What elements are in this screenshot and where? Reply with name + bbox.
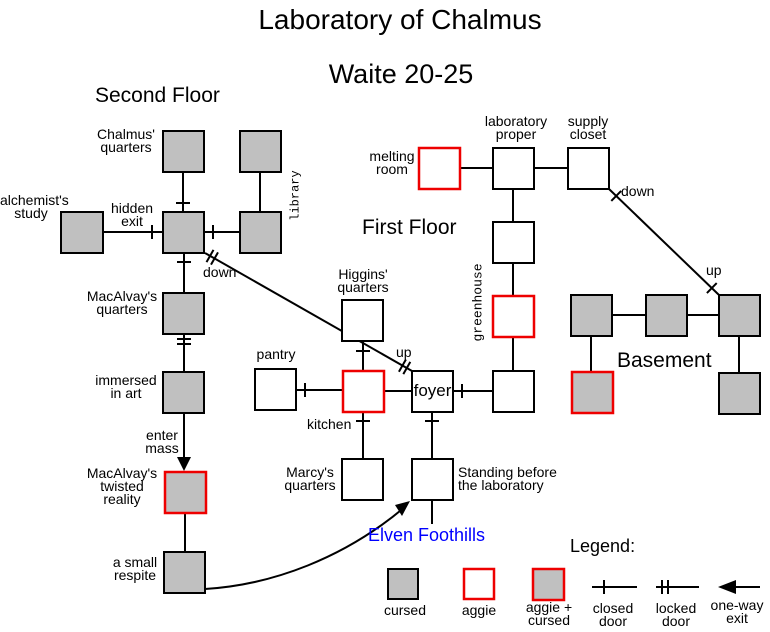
edge-label-up-to-first: up xyxy=(706,264,722,277)
room-second-floor-hall xyxy=(163,212,204,253)
legend-locked-door-glyph xyxy=(656,580,699,594)
edge-stairs-supply-basement xyxy=(609,189,719,295)
room-basement-2 xyxy=(646,295,687,336)
room-label-standing-before-laboratory: Standing before the laboratory xyxy=(458,466,557,492)
room-basement-3 xyxy=(719,295,760,336)
room-label-supply-closet: supply closet xyxy=(538,115,638,141)
room-library-north xyxy=(240,131,281,172)
room-label-foyer: foyer xyxy=(412,382,453,399)
room-label-higgins-quarters: Higgins' quarters xyxy=(313,268,413,294)
edge-label-down-to-first: down xyxy=(203,266,236,279)
room-supply-closet xyxy=(568,148,609,189)
legend-heading: Legend: xyxy=(570,537,635,555)
edge-label-down-to-basement: down xyxy=(621,185,654,198)
edge-oneway-respite-standing xyxy=(205,506,406,589)
region-label-elven-foothills: Elven Foothills xyxy=(368,526,485,544)
room-standing-before-laboratory xyxy=(412,459,453,500)
room-label-marcys-quarters: Marcy's quarters xyxy=(260,466,360,492)
room-label-macalvays-quarters: MacAlvay's quarters xyxy=(72,290,172,316)
room-label-greenhouse: greenhouse xyxy=(472,258,485,348)
room-label-macalvays-twisted-reality: MacAlvay's twisted reality xyxy=(72,467,172,506)
edge-label-hidden-exit: hidden exit xyxy=(103,202,161,228)
room-label-library: library xyxy=(290,166,303,226)
room-pantry xyxy=(255,369,296,410)
legend-glyphs xyxy=(388,569,760,600)
edge-label-up-to-second: up xyxy=(396,346,412,359)
legend-cursed-box xyxy=(388,569,418,599)
room-label-immersed-in-art: immersed in art xyxy=(76,374,176,400)
room-label-kitchen: kitchen xyxy=(307,418,351,431)
legend-aggie-cursed-box xyxy=(533,569,564,600)
room-label-pantry: pantry xyxy=(251,348,301,361)
room-laboratory-proper xyxy=(493,148,534,189)
room-label-a-small-respite: a small respite xyxy=(85,556,185,582)
room-label-alchemists-study: alchemist's study xyxy=(0,194,62,220)
legend-aggie-box xyxy=(464,569,494,599)
room-label-melting-room: melting room xyxy=(342,150,442,176)
arrowhead-enter-mass xyxy=(177,457,191,471)
room-label-chalmus-quarters: Chalmus' quarters xyxy=(76,128,176,154)
room-basement-4 xyxy=(572,372,613,413)
legend-one-way-glyph xyxy=(718,580,760,594)
legend-closed-door-glyph xyxy=(592,580,637,594)
heading-first-floor: First Floor xyxy=(362,217,457,238)
room-kitchen xyxy=(343,371,384,412)
room-greenhouse-south xyxy=(493,371,534,412)
heading-basement: Basement xyxy=(617,350,712,371)
legend-label-one-way-exit: one-way exit xyxy=(687,599,770,625)
room-basement-1 xyxy=(571,295,612,336)
edge-label-enter-mass: enter mass xyxy=(133,429,191,455)
room-greenhouse xyxy=(493,296,534,337)
room-library-south xyxy=(240,212,281,253)
heading-second-floor: Second Floor xyxy=(95,85,220,106)
room-basement-5 xyxy=(719,373,760,414)
room-alchemists-study xyxy=(61,212,103,253)
page-title: Laboratory of Chalmus xyxy=(15,6,770,34)
map-canvas: Laboratory of Chalmus Waite 20-25 Second… xyxy=(0,0,770,632)
room-greenhouse-north xyxy=(493,222,534,263)
room-higgins-quarters xyxy=(342,300,383,341)
